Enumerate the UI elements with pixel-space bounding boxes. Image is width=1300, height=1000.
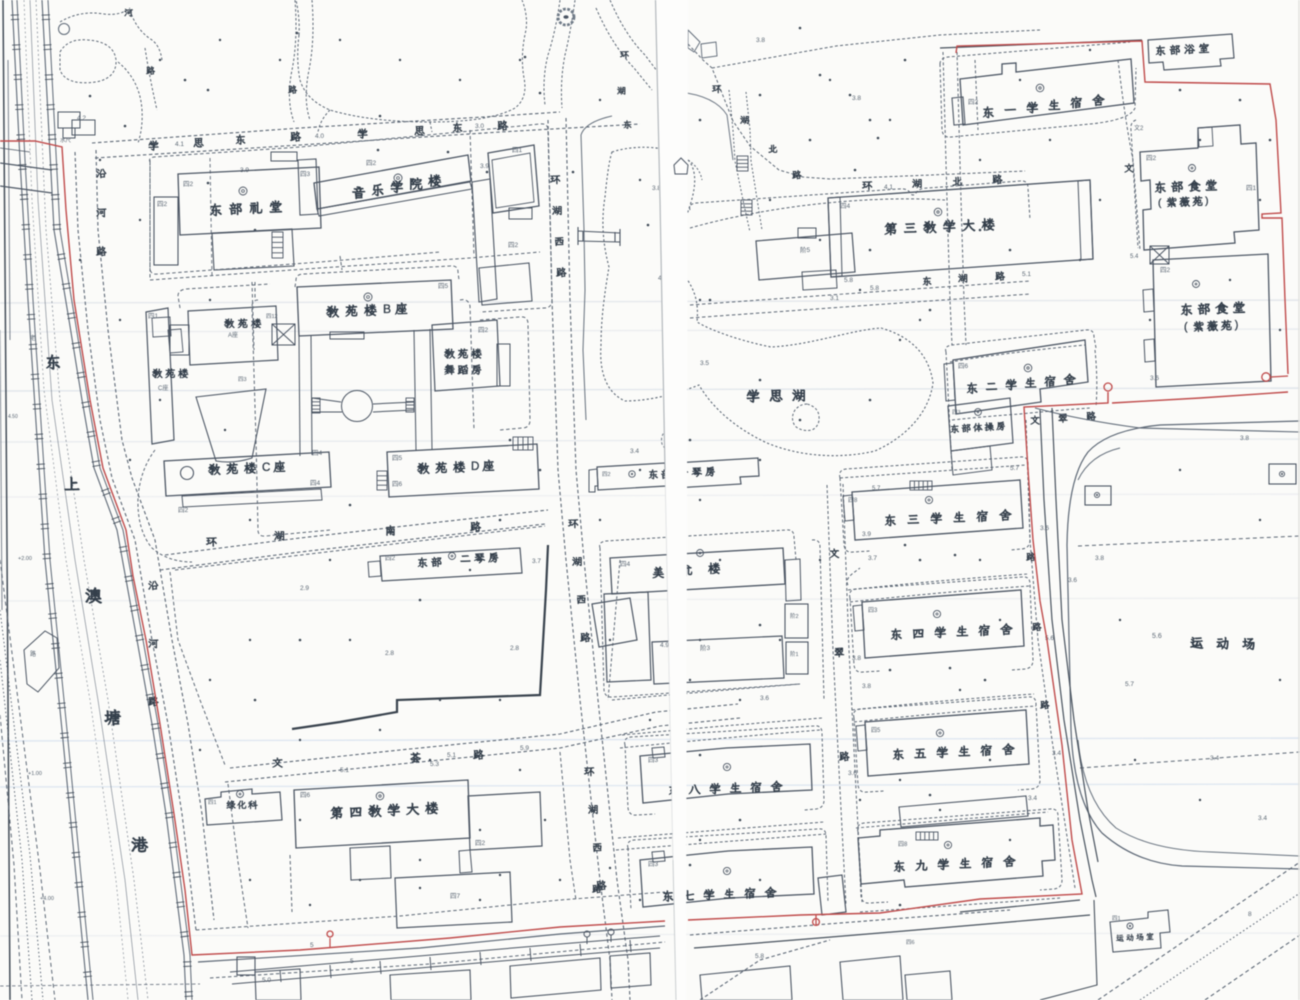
svg-text:5.8: 5.8 <box>870 285 879 292</box>
svg-text:D: D <box>471 461 479 473</box>
svg-text:阶3: 阶3 <box>700 643 711 652</box>
svg-text:3.4: 3.4 <box>1028 795 1037 802</box>
svg-text:四3: 四3 <box>238 376 247 383</box>
svg-text:四6: 四6 <box>392 480 403 488</box>
svg-text:3.4: 3.4 <box>630 448 639 455</box>
svg-text:四1: 四1 <box>1112 915 1121 922</box>
svg-text:5.1: 5.1 <box>1022 271 1031 278</box>
svg-text:5.8: 5.8 <box>844 277 853 284</box>
svg-text:C: C <box>262 462 270 474</box>
svg-text:四2: 四2 <box>478 326 489 334</box>
svg-text:四2: 四2 <box>1146 154 1157 162</box>
svg-text:3.9: 3.9 <box>480 163 489 170</box>
svg-text:四2: 四2 <box>157 200 168 208</box>
svg-text:四8: 四8 <box>898 841 908 848</box>
svg-text:3.8: 3.8 <box>862 683 871 690</box>
svg-text:四3: 四3 <box>648 860 659 868</box>
svg-text:阶1: 阶1 <box>790 650 799 658</box>
svg-text:文2: 文2 <box>1134 124 1144 132</box>
svg-text:3.1: 3.1 <box>830 295 839 302</box>
svg-text:3.8: 3.8 <box>1240 435 1249 442</box>
svg-text:四5: 四5 <box>392 454 403 462</box>
svg-text:四3: 四3 <box>300 170 311 178</box>
svg-text:3.8: 3.8 <box>852 655 861 662</box>
svg-text:3.9: 3.9 <box>862 531 871 538</box>
svg-text:+2.00: +2.00 <box>18 556 32 562</box>
svg-text:四2: 四2 <box>475 839 486 847</box>
svg-text:阶2: 阶2 <box>790 612 799 620</box>
svg-text:(: ( <box>1184 321 1188 333</box>
svg-text:路: 路 <box>30 650 36 658</box>
svg-text:四1: 四1 <box>512 146 523 154</box>
svg-text:5.1: 5.1 <box>447 752 456 759</box>
svg-text:2.8: 2.8 <box>510 645 519 652</box>
svg-text:四4: 四4 <box>620 560 631 568</box>
svg-text:四12: 四12 <box>266 313 278 320</box>
svg-text:3.6: 3.6 <box>1150 375 1159 382</box>
svg-text:3.5: 3.5 <box>700 360 709 367</box>
svg-text:四5: 四5 <box>438 282 449 290</box>
svg-text:四3: 四3 <box>648 756 659 764</box>
svg-text:3.4: 3.4 <box>1052 750 1061 757</box>
svg-text:3.8: 3.8 <box>1095 555 1104 562</box>
svg-text:3.6: 3.6 <box>848 770 857 777</box>
svg-text:老: 老 <box>30 334 36 342</box>
svg-text:水尺: 水尺 <box>60 136 72 144</box>
svg-text:3.6: 3.6 <box>1040 525 1049 532</box>
svg-text:四2: 四2 <box>183 180 194 188</box>
svg-text:四4: 四4 <box>840 202 851 210</box>
svg-text:2.8: 2.8 <box>385 650 394 657</box>
svg-text:4.50: 4.50 <box>8 414 18 420</box>
svg-text:5.8: 5.8 <box>755 953 764 960</box>
svg-text:3.6: 3.6 <box>1068 577 1077 584</box>
svg-text:四6: 四6 <box>906 939 915 946</box>
svg-text:阶5: 阶5 <box>800 245 811 254</box>
svg-text:四2: 四2 <box>366 159 377 167</box>
svg-text:四8: 四8 <box>848 497 858 504</box>
svg-text:四2: 四2 <box>508 241 519 249</box>
svg-text:B: B <box>383 302 391 316</box>
svg-text:5.1: 5.1 <box>340 767 349 774</box>
svg-text:3.7: 3.7 <box>868 555 877 562</box>
svg-text:四2: 四2 <box>968 98 979 106</box>
svg-text:5.9: 5.9 <box>520 745 529 752</box>
svg-text:3.6: 3.6 <box>760 695 769 702</box>
svg-text:四1: 四1 <box>1246 184 1257 192</box>
svg-text:2.9: 2.9 <box>300 585 309 592</box>
svg-text:A座: A座 <box>228 331 238 339</box>
svg-text:四6: 四6 <box>300 791 311 799</box>
svg-text:C座: C座 <box>158 384 168 392</box>
svg-text:5.7: 5.7 <box>1125 681 1134 688</box>
svg-text:3.0: 3.0 <box>475 123 484 130</box>
svg-text:四2: 四2 <box>385 554 396 562</box>
svg-text:4.9: 4.9 <box>660 642 669 649</box>
svg-text:): ) <box>1205 196 1208 207</box>
svg-text:四7: 四7 <box>450 892 461 900</box>
svg-text:): ) <box>1235 319 1239 331</box>
svg-text:5.6: 5.6 <box>1152 633 1162 640</box>
svg-text:3.4: 3.4 <box>1258 815 1267 822</box>
svg-text:4.0: 4.0 <box>315 133 324 140</box>
svg-text:5.7: 5.7 <box>872 486 881 492</box>
svg-text:四5: 四5 <box>871 727 881 734</box>
svg-text:3.8: 3.8 <box>852 95 861 102</box>
svg-text:四3: 四3 <box>868 607 878 614</box>
svg-text:四4: 四4 <box>312 449 323 457</box>
svg-text:四6: 四6 <box>958 362 969 370</box>
svg-text:四2: 四2 <box>178 506 189 514</box>
svg-text:3.8: 3.8 <box>756 37 765 44</box>
svg-text:5.4: 5.4 <box>1130 254 1139 260</box>
svg-text:4.1: 4.1 <box>175 141 184 148</box>
svg-text:8: 8 <box>1248 911 1252 918</box>
svg-text:四2: 四2 <box>602 471 611 478</box>
svg-text:3.4: 3.4 <box>1210 755 1219 762</box>
svg-text:3.7: 3.7 <box>532 558 541 565</box>
svg-text:5.3: 5.3 <box>430 761 439 768</box>
svg-text:5: 5 <box>310 942 314 949</box>
svg-text:4.2: 4.2 <box>77 115 86 122</box>
svg-text:+1.00: +1.00 <box>28 771 42 777</box>
svg-text:四1: 四1 <box>208 799 217 806</box>
svg-text:四4: 四4 <box>310 479 321 487</box>
svg-text:+4.00: +4.00 <box>40 896 54 902</box>
svg-text:四1: 四1 <box>148 312 159 320</box>
svg-text:四2: 四2 <box>1160 266 1171 274</box>
svg-text:四3: 四3 <box>952 409 961 416</box>
